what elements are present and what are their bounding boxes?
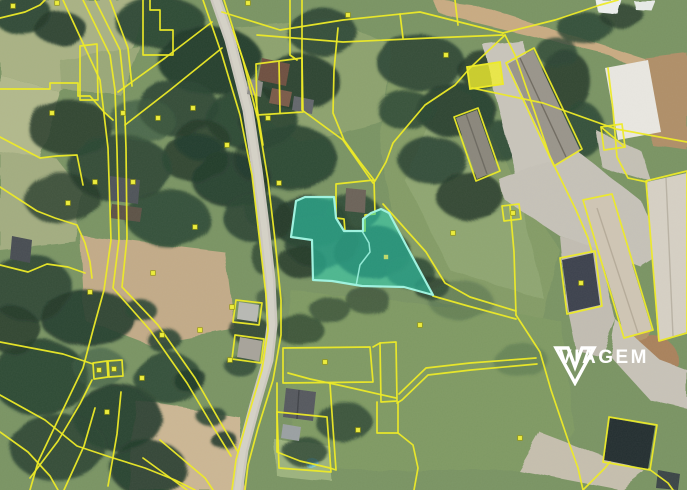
parcel-number-marker	[225, 143, 230, 148]
map-viewport[interactable]: VIAGEM	[0, 0, 687, 490]
parcel-number-marker	[50, 111, 55, 116]
parcel-number-marker	[160, 333, 165, 338]
parcel-number-marker	[451, 231, 456, 236]
parcel-number-marker	[511, 211, 516, 216]
parcel-number-marker	[228, 358, 233, 363]
parcel-number-marker	[266, 116, 271, 121]
parcel-number-marker	[93, 180, 98, 185]
parcel-number-marker	[55, 1, 60, 6]
parcel-number-marker	[156, 116, 161, 121]
parcel-number-marker	[105, 410, 110, 415]
parcel-number-marker	[323, 360, 328, 365]
highlighted-parcel-marker	[384, 255, 388, 259]
parcel-number-marker	[131, 180, 136, 185]
parcel-number-marker	[193, 225, 198, 230]
parcel-number-marker	[88, 290, 93, 295]
parcel-number-marker	[11, 4, 16, 9]
parcel-number-marker	[444, 53, 449, 58]
parcel-number-marker	[198, 328, 203, 333]
parcel-number-marker	[246, 1, 251, 6]
parcel-number-marker	[112, 367, 117, 372]
parcel-number-marker	[97, 368, 102, 373]
parcel-number-marker	[230, 305, 235, 310]
parcel-number-marker	[518, 436, 523, 441]
parcel-number-marker	[151, 271, 156, 276]
parcel-number-marker	[277, 181, 282, 186]
parcel-number-marker	[579, 281, 584, 286]
parcel-number-marker	[191, 106, 196, 111]
parcel-number-marker	[121, 111, 126, 116]
parcel-number-marker	[140, 376, 145, 381]
parcel-number-marker	[66, 201, 71, 206]
parcel-number-marker	[356, 428, 361, 433]
aerial-map-svg	[0, 0, 687, 490]
parcel-number-marker	[346, 13, 351, 18]
parcel-boundary	[279, 62, 280, 113]
parcel-number-marker	[418, 323, 423, 328]
